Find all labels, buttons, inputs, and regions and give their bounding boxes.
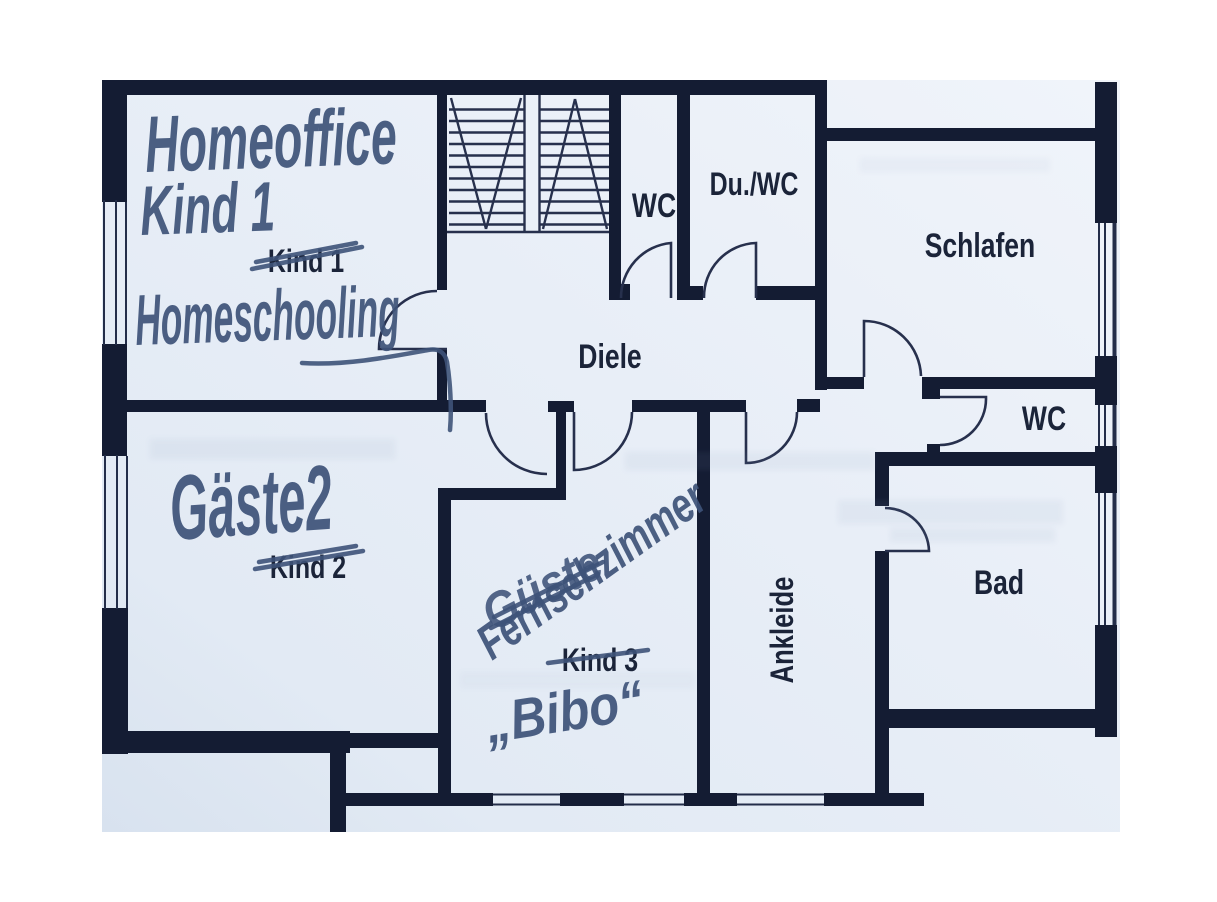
svg-text:Ankleide: Ankleide — [765, 577, 800, 684]
svg-text:WC: WC — [1022, 400, 1066, 438]
svg-text:WC: WC — [632, 187, 676, 225]
svg-text:Schlafen: Schlafen — [925, 227, 1036, 265]
svg-text:Bad: Bad — [974, 564, 1024, 602]
svg-text:Gäste2: Gäste2 — [166, 445, 335, 560]
svg-text:Kind 1: Kind 1 — [139, 168, 276, 250]
svg-text:Du./WC: Du./WC — [710, 167, 799, 203]
svg-text:Diele: Diele — [578, 338, 641, 376]
svg-text:Homeschooling: Homeschooling — [134, 272, 401, 361]
